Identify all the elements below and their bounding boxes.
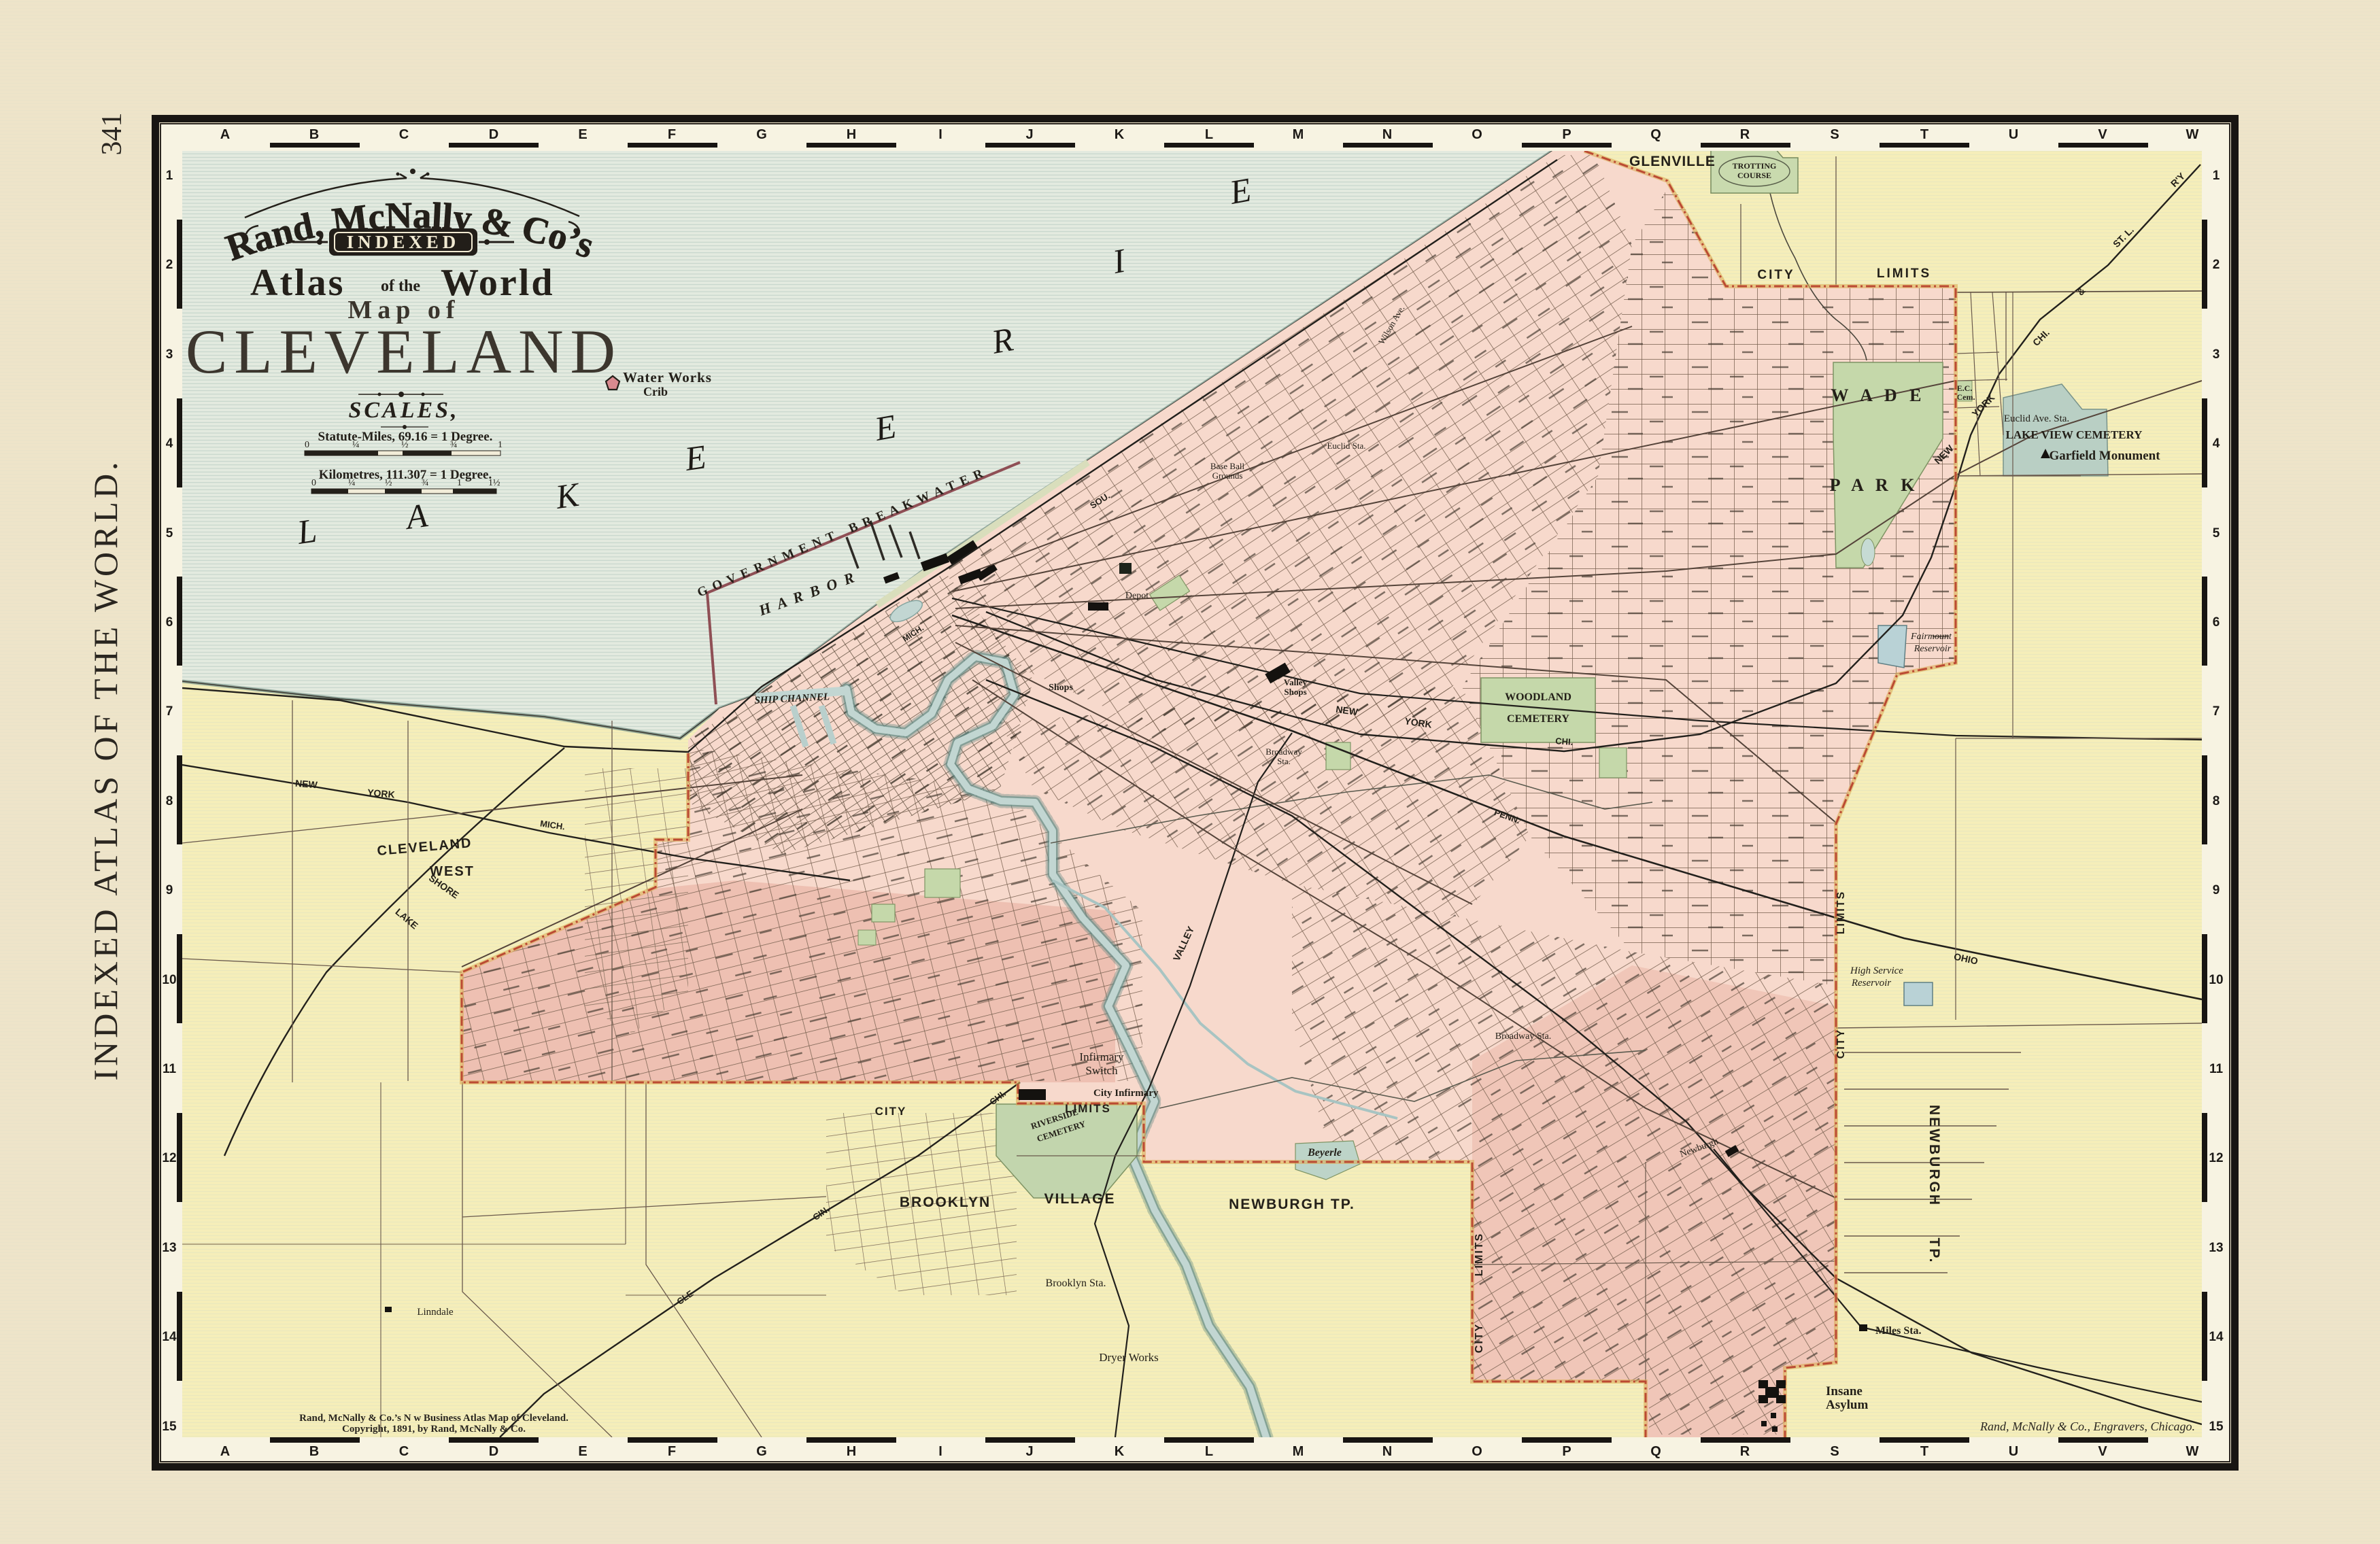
svg-text:3: 3 [166, 347, 173, 362]
svg-text:14: 14 [162, 1330, 177, 1344]
svg-text:LIMITS: LIMITS [1877, 267, 1931, 281]
svg-text:CEMETERY: CEMETERY [1507, 713, 1569, 725]
svg-text:1: 1 [166, 169, 173, 183]
svg-text:I: I [938, 127, 942, 142]
svg-text:Miles Sta.: Miles Sta. [1875, 1325, 1922, 1337]
svg-text:High Service: High Service [1850, 965, 1903, 976]
svg-text:Grounds: Grounds [1212, 470, 1243, 481]
svg-text:C: C [399, 127, 409, 142]
svg-text:1: 1 [498, 440, 503, 450]
svg-text:R: R [1740, 127, 1750, 142]
svg-text:Reservoir: Reservoir [1851, 978, 1891, 989]
svg-text:S: S [1830, 1444, 1839, 1459]
svg-text:Valley: Valley [1284, 677, 1308, 687]
svg-text:Insane: Insane [1826, 1384, 1863, 1399]
svg-text:H: H [847, 127, 856, 142]
svg-text:NEWBURGH TP.: NEWBURGH TP. [1229, 1197, 1355, 1212]
svg-text:7: 7 [2213, 704, 2220, 719]
svg-text:Linndale: Linndale [417, 1307, 454, 1318]
svg-text:City Infirmary: City Infirmary [1093, 1088, 1159, 1099]
svg-text:INDEXED: INDEXED [347, 232, 460, 252]
svg-text:TROTTING: TROTTING [1733, 161, 1777, 171]
svg-text:T: T [1920, 127, 1928, 142]
svg-text:T: T [1920, 1444, 1928, 1459]
svg-text:COURSE: COURSE [1737, 171, 1771, 180]
svg-text:11: 11 [163, 1062, 177, 1076]
svg-text:CITY: CITY [1757, 268, 1795, 282]
svg-text:CITY: CITY [875, 1105, 907, 1118]
svg-text:of the: of the [381, 277, 420, 295]
svg-text:C: C [399, 1444, 409, 1459]
svg-text:CITY: CITY [1474, 1323, 1485, 1353]
svg-text:Crib: Crib [643, 385, 668, 398]
svg-text:CHI.: CHI. [1555, 736, 1574, 747]
svg-text:M: M [1293, 1444, 1304, 1459]
svg-text:B: B [309, 127, 319, 142]
svg-text:B: B [309, 1444, 319, 1459]
svg-text:CITY: CITY [1835, 1029, 1847, 1059]
svg-text:S: S [1830, 127, 1839, 142]
svg-text:INDEXED ATLAS OF THE WORLD.: INDEXED ATLAS OF THE WORLD. [86, 458, 124, 1080]
svg-text:V: V [2098, 1444, 2107, 1459]
svg-text:VILLAGE: VILLAGE [1044, 1191, 1115, 1207]
svg-text:11: 11 [2209, 1062, 2224, 1076]
svg-text:K: K [1115, 127, 1125, 142]
svg-text:Rand, McNally & Co.’s N w Busi: Rand, McNally & Co.’s N w Business Atlas… [299, 1413, 568, 1424]
svg-text:Shops: Shops [1049, 683, 1073, 693]
svg-text:Water Works: Water Works [623, 369, 712, 385]
svg-text:341: 341 [97, 113, 128, 156]
svg-text:A: A [220, 127, 230, 142]
svg-text:15: 15 [162, 1420, 177, 1434]
svg-text:1½: 1½ [488, 478, 500, 488]
svg-text:A: A [220, 1444, 230, 1459]
svg-text:L: L [1205, 127, 1213, 142]
svg-text:Beyerle: Beyerle [1307, 1147, 1342, 1159]
svg-text:NEWBURGH: NEWBURGH [1926, 1105, 1942, 1207]
svg-text:J: J [1025, 127, 1033, 142]
svg-text:0: 0 [311, 478, 316, 488]
svg-text:G: G [756, 1444, 767, 1459]
svg-text:P: P [1562, 127, 1571, 142]
svg-text:W A D E: W A D E [1831, 385, 1925, 405]
svg-text:Copyright, 1891, by Rand, McNa: Copyright, 1891, by Rand, McNally & Co. [342, 1424, 526, 1435]
svg-text:4: 4 [166, 436, 173, 451]
svg-text:9: 9 [2213, 883, 2220, 897]
svg-text:5: 5 [2213, 526, 2220, 541]
svg-text:F: F [668, 1444, 676, 1459]
svg-text:8: 8 [2213, 794, 2220, 808]
svg-text:Asylum: Asylum [1826, 1398, 1868, 1412]
svg-text:14: 14 [2209, 1330, 2224, 1344]
svg-text:Sta.: Sta. [1277, 756, 1291, 766]
svg-text:15: 15 [2209, 1420, 2224, 1434]
svg-text:Switch: Switch [1085, 1064, 1118, 1077]
svg-text:10: 10 [2209, 973, 2223, 987]
svg-text:2: 2 [166, 258, 173, 272]
svg-text:Atlas: Atlas [250, 262, 345, 304]
svg-text:O: O [1472, 127, 1482, 142]
svg-text:I: I [938, 1444, 942, 1459]
svg-text:BROOKLYN: BROOKLYN [900, 1195, 991, 1210]
svg-text:Fairmount: Fairmount [1910, 632, 1952, 642]
svg-text:R: R [1740, 1444, 1750, 1459]
svg-text:6: 6 [166, 615, 173, 630]
svg-text:Cem.: Cem. [1957, 392, 1975, 402]
svg-text:0: 0 [305, 440, 309, 450]
svg-text:O: O [1472, 1444, 1482, 1459]
svg-text:TP.: TP. [1926, 1238, 1942, 1265]
svg-text:P A R K: P A R K [1830, 475, 1919, 495]
svg-text:Euclid Ave. Sta.: Euclid Ave. Sta. [2004, 413, 2069, 424]
svg-text:12: 12 [162, 1151, 176, 1165]
svg-text:H: H [847, 1444, 856, 1459]
svg-text:N: N [1382, 1444, 1392, 1459]
svg-text:½: ½ [401, 440, 409, 450]
svg-text:N: N [1382, 127, 1392, 142]
svg-text:2: 2 [2213, 258, 2220, 272]
svg-text:D: D [489, 1444, 498, 1459]
svg-text:M: M [1293, 127, 1304, 142]
svg-text:U: U [2009, 1444, 2018, 1459]
svg-text:12: 12 [2209, 1151, 2223, 1165]
svg-text:Garfield Monument: Garfield Monument [2049, 449, 2160, 463]
svg-text:Broadway Sta.: Broadway Sta. [1495, 1031, 1551, 1042]
svg-text:Broadway: Broadway [1265, 747, 1302, 757]
svg-text:Rand, McNally & Co., Engravers: Rand, McNally & Co., Engravers, Chicago. [1979, 1420, 2195, 1433]
svg-text:¼: ¼ [348, 478, 356, 488]
svg-text:1: 1 [457, 478, 462, 488]
svg-text:Q: Q [1650, 1444, 1661, 1459]
svg-text:LAKE VIEW CEMETERY: LAKE VIEW CEMETERY [2006, 428, 2143, 441]
svg-text:¾: ¾ [422, 478, 429, 488]
svg-text:E.C.: E.C. [1957, 383, 1973, 393]
svg-text:4: 4 [2213, 436, 2220, 451]
svg-text:Kilometres, 111.307 = 1 Degree: Kilometres, 111.307 = 1 Degree. [319, 468, 492, 482]
svg-text:7: 7 [166, 704, 173, 719]
svg-text:V: V [2098, 127, 2107, 142]
svg-text:L: L [1205, 1444, 1213, 1459]
svg-text:8: 8 [166, 794, 173, 808]
svg-text:9: 9 [166, 883, 173, 897]
svg-text:Q: Q [1650, 127, 1661, 142]
svg-text:½: ½ [385, 478, 392, 488]
svg-text:5: 5 [166, 526, 173, 541]
svg-text:E: E [578, 1444, 587, 1459]
svg-text:LIMITS: LIMITS [1474, 1233, 1485, 1276]
svg-text:G: G [756, 127, 767, 142]
svg-text:Brooklyn Sta.: Brooklyn Sta. [1046, 1277, 1106, 1289]
svg-text:GLENVILLE: GLENVILLE [1629, 154, 1716, 169]
svg-text:Shops: Shops [1284, 687, 1306, 697]
svg-text:W: W [2186, 1444, 2199, 1459]
svg-text:Base Ball: Base Ball [1210, 461, 1245, 471]
svg-text:¾: ¾ [450, 440, 458, 450]
svg-text:13: 13 [162, 1241, 176, 1255]
svg-text:¼: ¼ [352, 440, 360, 450]
svg-text:LIMITS: LIMITS [1835, 891, 1847, 934]
svg-text:Reservoir: Reservoir [1914, 644, 1952, 654]
svg-text:3: 3 [2213, 347, 2220, 362]
svg-text:J: J [1025, 1444, 1033, 1459]
svg-text:13: 13 [2209, 1241, 2223, 1255]
svg-text:CLEVELAND: CLEVELAND [186, 317, 622, 386]
svg-text:WOODLAND: WOODLAND [1505, 691, 1571, 703]
svg-text:Euclid Sta.: Euclid Sta. [1327, 441, 1365, 451]
svg-text:6: 6 [2213, 615, 2220, 630]
svg-text:NEW: NEW [294, 778, 318, 791]
svg-text:D: D [489, 127, 498, 142]
svg-text:1: 1 [2213, 169, 2220, 183]
svg-text:10: 10 [162, 973, 176, 987]
svg-text:Dryer Works: Dryer Works [1099, 1351, 1159, 1364]
svg-text:U: U [2009, 127, 2018, 142]
svg-text:Depot: Depot [1125, 591, 1149, 601]
svg-text:F: F [668, 127, 676, 142]
svg-text:P: P [1562, 1444, 1571, 1459]
svg-text:E: E [578, 127, 587, 142]
svg-text:K: K [1115, 1444, 1125, 1459]
svg-text:SCALES,: SCALES, [348, 398, 459, 423]
svg-text:Infirmary: Infirmary [1079, 1050, 1124, 1063]
svg-text:W: W [2186, 127, 2199, 142]
